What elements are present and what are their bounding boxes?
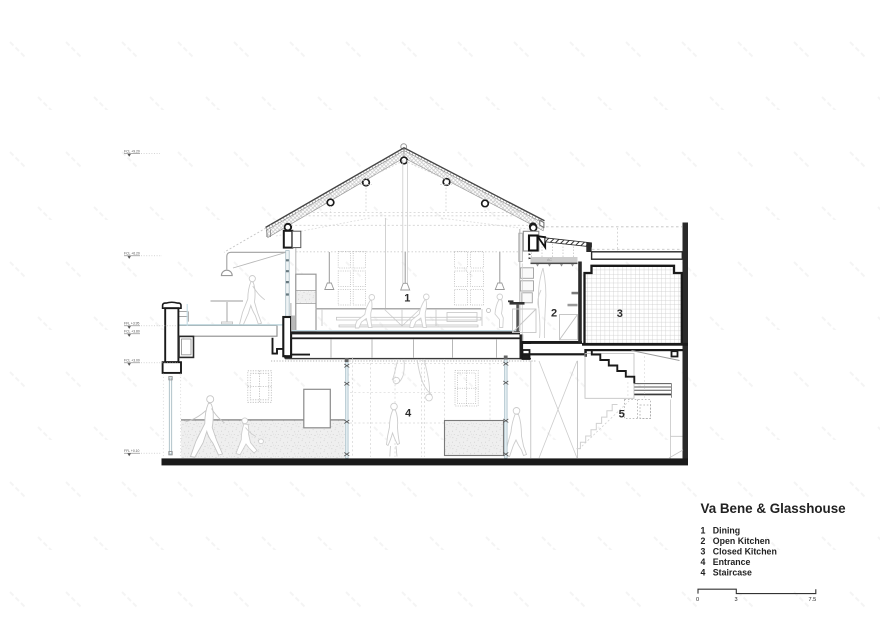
svg-text:4: 4	[405, 408, 412, 420]
svg-text:1: 1	[404, 293, 410, 305]
svg-text:3: 3	[617, 308, 623, 320]
svg-text:1: 1	[701, 525, 706, 535]
svg-text:AC: AC	[547, 258, 552, 262]
svg-text:4: 4	[701, 557, 706, 567]
svg-text:7.5: 7.5	[809, 597, 817, 603]
svg-text:FCL +9.20: FCL +9.20	[124, 150, 140, 154]
svg-text:2: 2	[551, 308, 557, 320]
svg-text:Dining: Dining	[713, 525, 740, 535]
svg-text:5: 5	[619, 409, 625, 421]
svg-text:3: 3	[701, 546, 706, 556]
svg-text:0: 0	[696, 597, 699, 603]
svg-text:4: 4	[701, 567, 706, 577]
svg-text:FFL +3.95: FFL +3.95	[124, 322, 140, 326]
svg-text:Open Kitchen: Open Kitchen	[713, 536, 770, 546]
svg-text:FCL +3.00: FCL +3.00	[124, 359, 140, 363]
svg-text:Entrance: Entrance	[713, 557, 751, 567]
svg-text:FCL +3.80: FCL +3.80	[124, 330, 140, 334]
svg-text:Va Bene & Glasshouse: Va Bene & Glasshouse	[701, 501, 846, 516]
svg-text:FCL +6.20: FCL +6.20	[124, 252, 140, 256]
svg-text:2: 2	[701, 536, 706, 546]
svg-text:FFL +0.10: FFL +0.10	[124, 449, 140, 453]
svg-text:Closed Kitchen: Closed Kitchen	[713, 546, 777, 556]
svg-text:Staircase: Staircase	[713, 567, 752, 577]
svg-text:3: 3	[735, 597, 738, 603]
